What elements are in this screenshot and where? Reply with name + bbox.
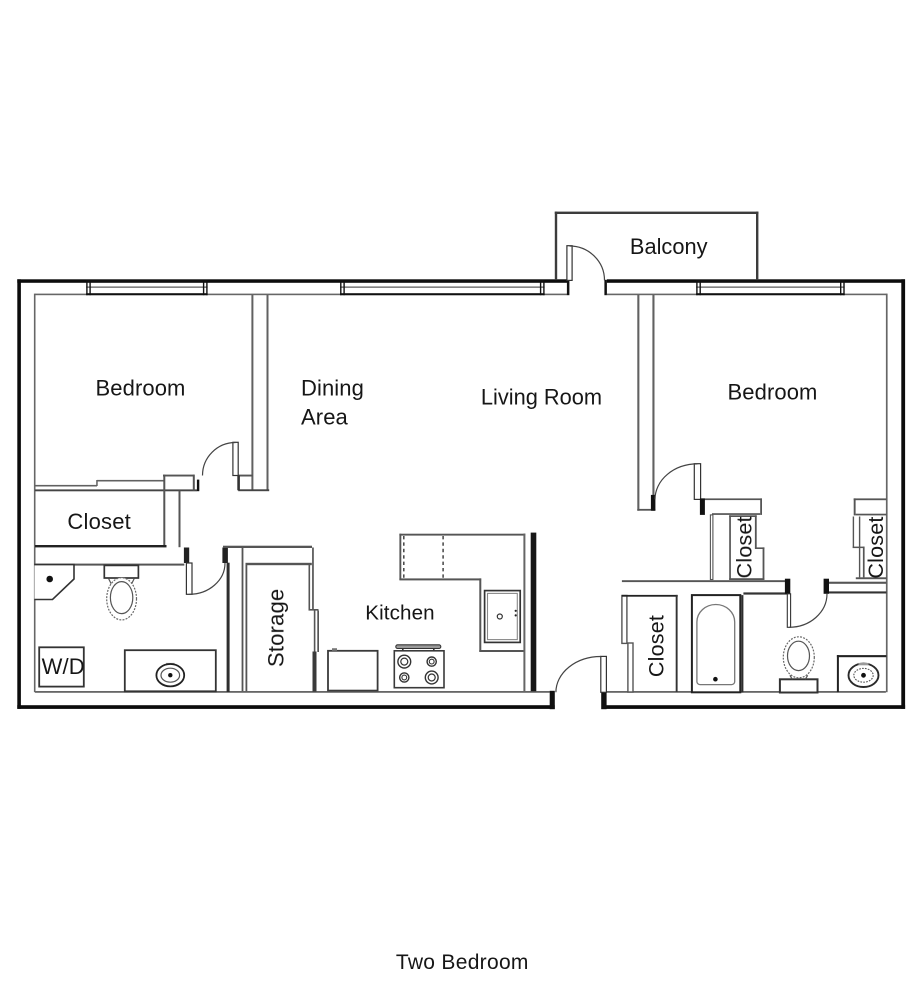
svg-text:Bedroom: Bedroom	[96, 376, 186, 401]
svg-text:Bedroom: Bedroom	[728, 380, 818, 405]
svg-text:Storage: Storage	[264, 589, 289, 667]
svg-text:Closet: Closet	[864, 516, 888, 578]
svg-text:Area: Area	[301, 404, 349, 429]
svg-text:Living Room: Living Room	[481, 385, 602, 410]
svg-text:Kitchen: Kitchen	[365, 602, 434, 625]
svg-text:W/D: W/D	[42, 654, 85, 679]
svg-text:Closet: Closet	[645, 615, 669, 677]
svg-text:Closet: Closet	[733, 516, 757, 578]
svg-text:Dining: Dining	[301, 376, 364, 401]
svg-text:Closet: Closet	[67, 509, 131, 534]
svg-text:Balcony: Balcony	[630, 234, 708, 259]
svg-text:Two Bedroom: Two Bedroom	[396, 951, 529, 974]
